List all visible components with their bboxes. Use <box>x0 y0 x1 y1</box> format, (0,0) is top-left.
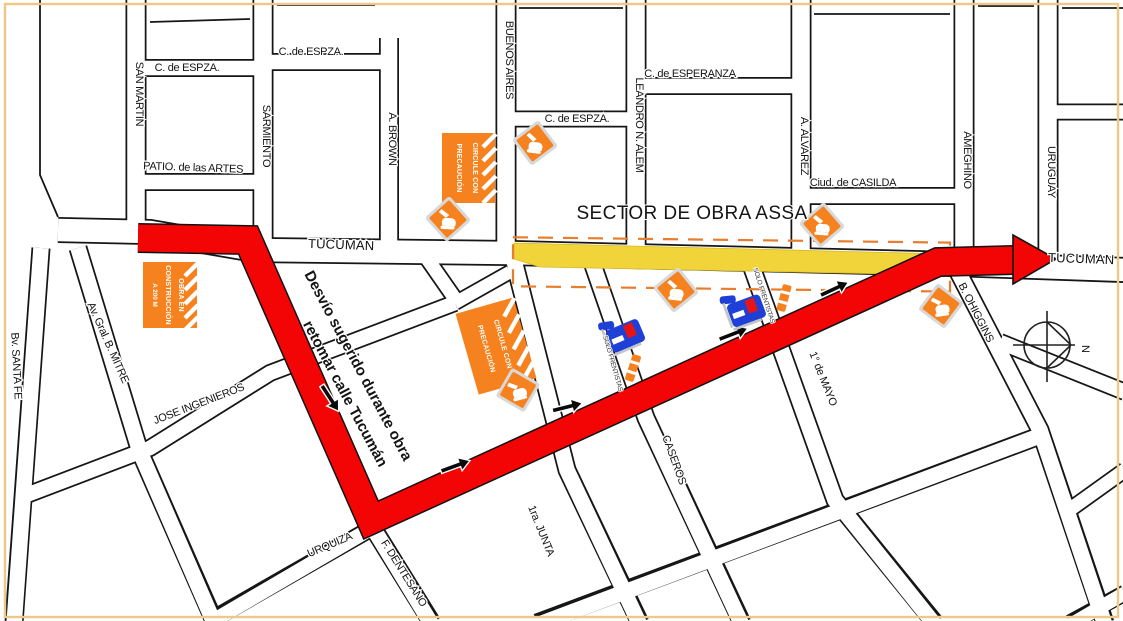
sign-text: CONSTRUCCIÓN <box>164 265 173 325</box>
street-label: SAN MARTIN <box>133 62 145 127</box>
work-sector-title: SECTOR DE OBRA ASSA <box>576 203 807 224</box>
street-label: C. de ESPZA. <box>155 62 220 74</box>
street-label: 1° de MAYO <box>806 350 839 408</box>
sign-text: A 200 M <box>151 283 158 307</box>
street-label: A. BROWN <box>386 112 398 166</box>
sign-text: PRECAUCIÓN <box>455 143 464 192</box>
sign-obra-en-construccion: A 200 M CONSTRUCCIÓN OBRA EN <box>143 262 198 330</box>
street-label: A. ALVAREZ <box>798 117 810 176</box>
street-label: TUCUMAN <box>308 236 375 253</box>
street-label: Ciud. de CASILDA <box>810 177 897 189</box>
work-barrier-icon <box>776 284 792 312</box>
detour-map: PRECAUCIÓN CIRCULE CON A 200 M CONSTRUCC… <box>0 0 1123 621</box>
street-label: C. de ESPZA. <box>545 113 610 125</box>
street-label: URUGUAY <box>1045 146 1057 199</box>
street-label: BUENOS AIRES <box>503 21 515 99</box>
street-label: 1ra. JUNTA <box>525 504 557 559</box>
sign-text: OBRA EN <box>177 278 184 311</box>
street-label: Bv. SANTA FE <box>8 332 23 399</box>
excavator-warning-icon <box>650 264 701 315</box>
street-label: C. de ESPERANZA <box>644 68 736 80</box>
street-label: C. de ESPZA. <box>279 46 344 58</box>
street-label: TUCUMAN <box>1048 250 1115 267</box>
street-label: LEANDRO N. ALEM <box>633 77 645 172</box>
street-label: F. DENTESANO <box>378 538 429 610</box>
compass-north-letter: N <box>1079 345 1091 353</box>
sign-text: CIRCULE CON <box>471 143 478 194</box>
street-label: AMEGHINO <box>961 131 973 189</box>
street-label: SARMIENTO <box>260 105 272 168</box>
sign-circule-precaucion-1: PRECAUCIÓN CIRCULE CON <box>442 133 496 203</box>
